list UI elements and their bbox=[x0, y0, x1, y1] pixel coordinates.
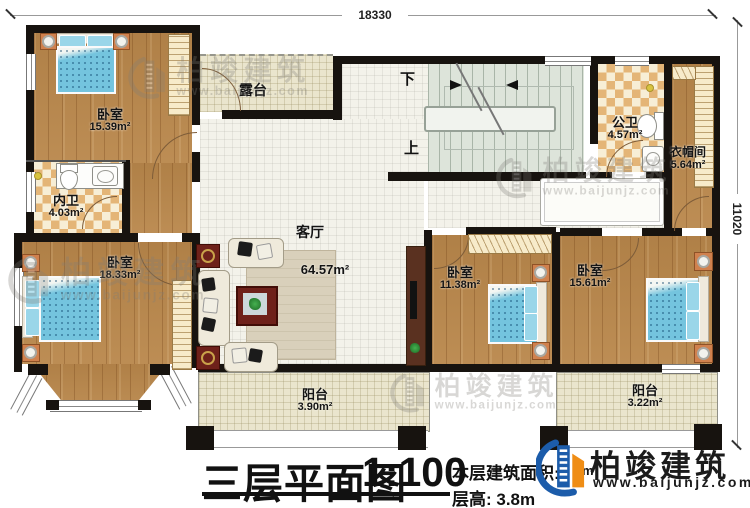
pillow bbox=[524, 313, 538, 341]
dim-right-value: 11020 bbox=[730, 194, 744, 244]
room-label-balcony-right: 阳台 3.22m² bbox=[608, 384, 682, 409]
floor-height-label: 层高: 3.8m bbox=[452, 485, 535, 508]
cushion bbox=[231, 347, 247, 363]
nightstand bbox=[694, 252, 713, 271]
dim-tick bbox=[5, 9, 16, 20]
stair-up-label: 上 bbox=[404, 137, 419, 158]
tv-icon bbox=[410, 281, 417, 319]
lamp-icon bbox=[534, 266, 547, 279]
sink-symbol bbox=[92, 166, 118, 186]
stair-down-label: 下 bbox=[400, 68, 415, 89]
wall-segment bbox=[552, 232, 560, 372]
nightstand bbox=[113, 33, 130, 50]
end-table-ring bbox=[201, 249, 215, 263]
room-label-bedroom-bottom-left: 卧室 18.33m² bbox=[80, 256, 160, 281]
tv-cabinet bbox=[406, 246, 426, 366]
pillow bbox=[686, 311, 700, 340]
pillow bbox=[25, 308, 40, 336]
column bbox=[186, 426, 214, 450]
lamp-icon bbox=[534, 344, 547, 357]
floor-plan: 18330 11020 bbox=[0, 0, 750, 508]
room-label-living: 客厅 bbox=[275, 226, 345, 239]
pillow bbox=[25, 280, 40, 308]
wardrobe bbox=[468, 234, 552, 254]
room-label-bedroom-bottom-center: 卧室 11.38m² bbox=[422, 266, 498, 291]
room-label-bedroom-top-left: 卧室 15.39m² bbox=[70, 108, 150, 133]
room-label-balcony-left: 阳台 3.90m² bbox=[278, 388, 352, 413]
lamp-icon bbox=[24, 346, 37, 359]
dim-top-value: 18330 bbox=[342, 8, 408, 22]
pillow bbox=[686, 282, 700, 311]
wall-segment bbox=[26, 25, 198, 33]
stair-arrow-icon bbox=[450, 80, 462, 90]
window bbox=[615, 56, 649, 66]
balcony-left-edge bbox=[198, 430, 428, 448]
wall-segment bbox=[333, 56, 545, 64]
cushion bbox=[237, 241, 253, 257]
bed-mattress bbox=[56, 46, 116, 94]
room-label-terrace: 露台 bbox=[218, 84, 288, 97]
cushion bbox=[201, 277, 216, 292]
nightstand bbox=[22, 254, 40, 272]
bay-corner bbox=[46, 400, 59, 410]
end-table-ring bbox=[201, 351, 215, 365]
plant-icon bbox=[249, 298, 261, 310]
wardrobe bbox=[172, 280, 192, 370]
window bbox=[545, 56, 591, 66]
stair-arrow-icon bbox=[506, 80, 518, 90]
wall-segment bbox=[432, 364, 554, 372]
lamp-icon bbox=[115, 35, 128, 48]
cushion bbox=[202, 297, 218, 313]
wall-segment bbox=[560, 364, 662, 372]
wall-segment bbox=[222, 110, 342, 119]
lamp-icon bbox=[697, 255, 710, 268]
room-label-cloakroom: 衣帽间 5.64m² bbox=[658, 146, 718, 171]
wall-segment bbox=[192, 25, 200, 125]
coffee-table bbox=[236, 286, 278, 326]
cushion bbox=[248, 348, 263, 363]
bay-window-glass bbox=[10, 372, 42, 416]
wall-segment bbox=[560, 228, 602, 236]
column bbox=[398, 426, 426, 450]
room-label-public-bathroom: 公卫 4.57m² bbox=[592, 116, 658, 141]
room-label-inner-bathroom: 内卫 4.03m² bbox=[32, 194, 100, 219]
valve-icon bbox=[646, 84, 654, 92]
room-area-living: 64.57m² bbox=[290, 264, 360, 276]
wall-thin bbox=[26, 160, 126, 162]
window bbox=[662, 364, 700, 374]
lamp-icon bbox=[24, 256, 37, 269]
brand-logo-icon bbox=[536, 438, 590, 498]
valve-icon bbox=[34, 172, 42, 180]
pillow bbox=[524, 286, 538, 314]
wardrobe bbox=[168, 34, 190, 116]
end-table bbox=[196, 244, 220, 268]
hall-cabinet bbox=[540, 178, 664, 226]
nightstand bbox=[694, 344, 713, 363]
brand-website: www.baijunjz.com bbox=[593, 474, 750, 490]
plant-icon bbox=[410, 343, 420, 353]
wall-segment bbox=[700, 364, 714, 372]
nightstand bbox=[532, 342, 550, 360]
sink-basin bbox=[97, 170, 114, 183]
nightstand bbox=[532, 264, 550, 282]
bed-mattress bbox=[39, 276, 101, 342]
wall-segment bbox=[649, 56, 720, 64]
nightstand bbox=[22, 344, 40, 362]
window bbox=[26, 54, 36, 90]
cushion bbox=[256, 243, 273, 260]
wall-segment bbox=[14, 233, 138, 242]
bay-corner bbox=[150, 364, 170, 375]
wardrobe bbox=[672, 66, 696, 80]
bay-corner bbox=[28, 364, 48, 375]
lamp-icon bbox=[697, 347, 710, 360]
bay-window-glass bbox=[50, 400, 142, 412]
end-table bbox=[196, 346, 220, 370]
bay-corner bbox=[138, 400, 151, 410]
lamp-icon bbox=[42, 35, 55, 48]
cushion bbox=[201, 317, 216, 332]
dim-tick bbox=[707, 9, 718, 20]
nightstand bbox=[40, 33, 57, 50]
room-label-bedroom-bottom-right: 卧室 15.61m² bbox=[552, 264, 628, 289]
